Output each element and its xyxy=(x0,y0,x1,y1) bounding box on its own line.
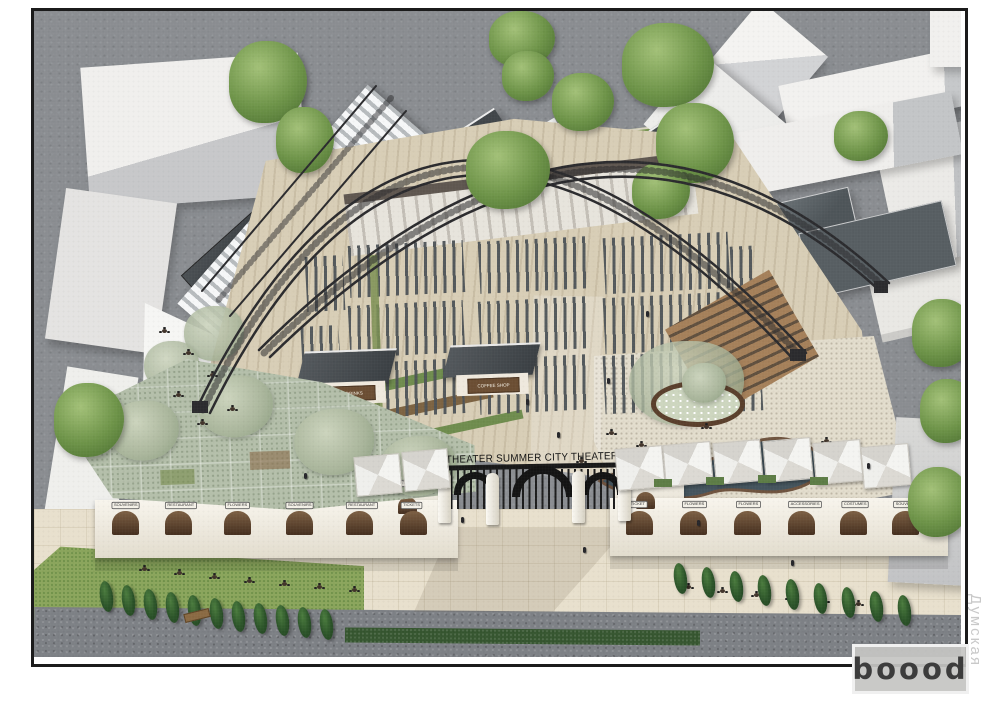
facade-shadow xyxy=(610,556,948,569)
terrace-planter xyxy=(758,475,776,483)
person xyxy=(557,432,560,438)
person xyxy=(304,473,307,479)
person xyxy=(791,560,794,566)
roof-umbrella xyxy=(353,453,402,497)
person xyxy=(607,378,610,384)
cafe-table xyxy=(352,588,357,592)
bottom-hedge xyxy=(345,627,700,645)
cafe-table xyxy=(856,602,861,606)
cafe-table xyxy=(317,585,322,589)
cafe-table xyxy=(142,567,147,571)
cafe-table xyxy=(230,407,235,411)
bench-rows xyxy=(305,255,346,312)
arcade-sign: TICKET xyxy=(628,501,647,508)
cafe-table xyxy=(282,582,287,586)
arcade-sign: SOUVENIRS xyxy=(286,502,314,509)
render-frame: MR. DRINKS COFFEE SHOP THEATER SUMMER CI… xyxy=(31,8,968,667)
tree xyxy=(912,299,961,367)
arcade-arch xyxy=(680,511,707,535)
tree xyxy=(552,73,614,131)
arcade-sign: ACCESSORIES xyxy=(788,501,822,508)
arcade-arch xyxy=(346,511,373,535)
gate-pier xyxy=(486,473,499,525)
pergola-gap xyxy=(160,469,195,485)
arcade-sign: SOUVENIRS xyxy=(112,502,140,509)
person xyxy=(867,463,870,469)
context-building xyxy=(930,11,961,67)
olive-tree xyxy=(197,374,274,439)
person xyxy=(697,520,700,526)
person xyxy=(646,311,649,317)
tree xyxy=(908,467,961,537)
gate-pier xyxy=(572,471,585,523)
cafe-table xyxy=(200,421,205,425)
arcade-arch xyxy=(734,511,761,535)
pergola-gap xyxy=(250,451,291,470)
arcade-arch xyxy=(840,511,867,535)
terrace-planter xyxy=(654,479,672,487)
arcade-sign: RESTAURANT xyxy=(346,502,378,509)
arcade-arch xyxy=(788,511,815,535)
bench-rows xyxy=(603,232,731,294)
arcade-sign: FLOWERS xyxy=(225,502,250,509)
page-background: MR. DRINKS COFFEE SHOP THEATER SUMMER CI… xyxy=(0,0,1000,706)
person xyxy=(526,399,529,405)
roof-umbrella xyxy=(401,448,450,492)
cafe-table xyxy=(247,579,252,583)
arcade-arch xyxy=(165,511,192,535)
site-watermark: Думская xyxy=(967,594,984,667)
cafe-table xyxy=(609,431,614,435)
person xyxy=(583,547,586,553)
masterplan-render: MR. DRINKS COFFEE SHOP THEATER SUMMER CI… xyxy=(34,11,961,657)
kiosk: COFFEE SHOP xyxy=(446,342,538,398)
cafe-table xyxy=(176,393,181,397)
kiosk-sign: COFFEE SHOP xyxy=(467,377,519,394)
cafe-table xyxy=(720,589,725,593)
arcade-arch xyxy=(400,511,427,535)
cafe-table xyxy=(579,459,584,463)
terrace-planter xyxy=(706,477,724,485)
terrace-planter xyxy=(810,477,828,485)
tree xyxy=(502,51,554,101)
arcade-sign: FLOWERS xyxy=(682,501,707,508)
cafe-table xyxy=(177,571,182,575)
cafe-table xyxy=(704,425,709,429)
tree xyxy=(920,379,961,443)
arcade-arch xyxy=(286,511,313,535)
cafe-table xyxy=(210,373,215,377)
facade-shadow xyxy=(95,558,458,571)
arcade-arch xyxy=(224,511,251,535)
arcade-sign: TICKETS xyxy=(401,502,423,509)
arcade-arch xyxy=(112,511,139,535)
arcade-sign: FLOWERS xyxy=(736,501,761,508)
arcade-sign: RESTAURANT xyxy=(165,502,197,509)
cafe-table xyxy=(162,329,167,333)
studio-watermark: boood xyxy=(852,644,969,694)
arcade-sign: COSTUMES xyxy=(841,501,868,508)
person xyxy=(461,517,464,523)
bench-rows xyxy=(348,240,466,298)
cafe-table xyxy=(186,351,191,355)
bench-rows xyxy=(478,236,591,294)
cafe-table xyxy=(212,575,217,579)
